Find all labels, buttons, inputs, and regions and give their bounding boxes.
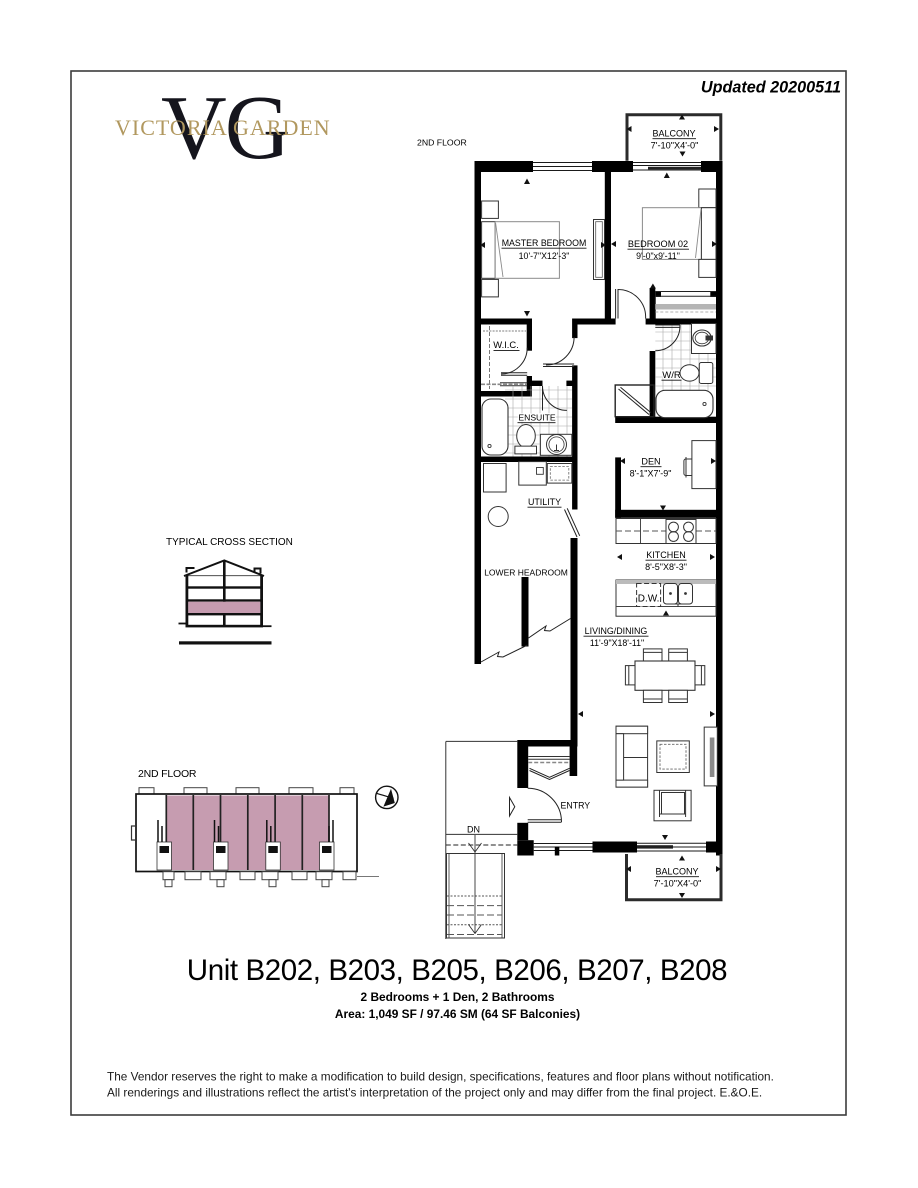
svg-text:11'-9"X18'-11": 11'-9"X18'-11" — [590, 638, 644, 648]
svg-text:BALCONY: BALCONY — [655, 867, 698, 877]
svg-text:LOWER HEADROOM: LOWER HEADROOM — [484, 568, 568, 578]
svg-text:MASTER BEDROOM: MASTER BEDROOM — [502, 238, 587, 248]
svg-text:ENTRY: ENTRY — [561, 801, 591, 811]
svg-text:Updated 20200511: Updated 20200511 — [701, 79, 841, 97]
svg-text:2ND FLOOR: 2ND FLOOR — [417, 138, 467, 148]
svg-text:All renderings and illustratio: All renderings and illustrations reflect… — [107, 1086, 762, 1100]
svg-text:W/R: W/R — [662, 370, 681, 381]
svg-text:The Vendor reserves the right: The Vendor reserves the right to make a … — [107, 1070, 774, 1084]
svg-text:9'-0"x9'-11": 9'-0"x9'-11" — [636, 251, 680, 261]
svg-text:2 Bedrooms + 1 Den, 2 Bathroom: 2 Bedrooms + 1 Den, 2 Bathrooms — [361, 990, 555, 1004]
svg-text:TYPICAL CROSS SECTION: TYPICAL CROSS SECTION — [166, 537, 293, 548]
svg-text:DEN: DEN — [641, 457, 660, 467]
svg-text:BALCONY: BALCONY — [652, 129, 695, 139]
svg-text:LIVING/DINING: LIVING/DINING — [585, 626, 648, 636]
svg-text:8'-5"X8'-3": 8'-5"X8'-3" — [645, 562, 687, 572]
svg-text:10'-7"X12'-3": 10'-7"X12'-3" — [519, 251, 570, 261]
svg-text:2ND FLOOR: 2ND FLOOR — [138, 768, 197, 780]
svg-text:ENSUITE: ENSUITE — [518, 413, 556, 423]
svg-text:VICTORIA GARDEN: VICTORIA GARDEN — [115, 115, 331, 140]
svg-text:7'-10"X4'-0": 7'-10"X4'-0" — [651, 141, 699, 151]
svg-text:Unit B202, B203, B205, B206, B: Unit B202, B203, B205, B206, B207, B208 — [187, 954, 727, 987]
svg-text:UTILITY: UTILITY — [528, 497, 561, 507]
svg-text:KITCHEN: KITCHEN — [646, 550, 686, 560]
svg-text:D.W.: D.W. — [638, 594, 660, 605]
svg-text:DN: DN — [467, 825, 480, 835]
svg-text:8'-1"X7'-9": 8'-1"X7'-9" — [630, 469, 672, 479]
svg-text:W.I.C.: W.I.C. — [493, 339, 519, 350]
svg-text:BEDROOM 02: BEDROOM 02 — [628, 239, 688, 249]
svg-text:7'-10"X4'-0": 7'-10"X4'-0" — [654, 879, 702, 889]
svg-text:Area: 1,049 SF / 97.46 SM (64: Area: 1,049 SF / 97.46 SM (64 SF Balconi… — [335, 1007, 580, 1021]
